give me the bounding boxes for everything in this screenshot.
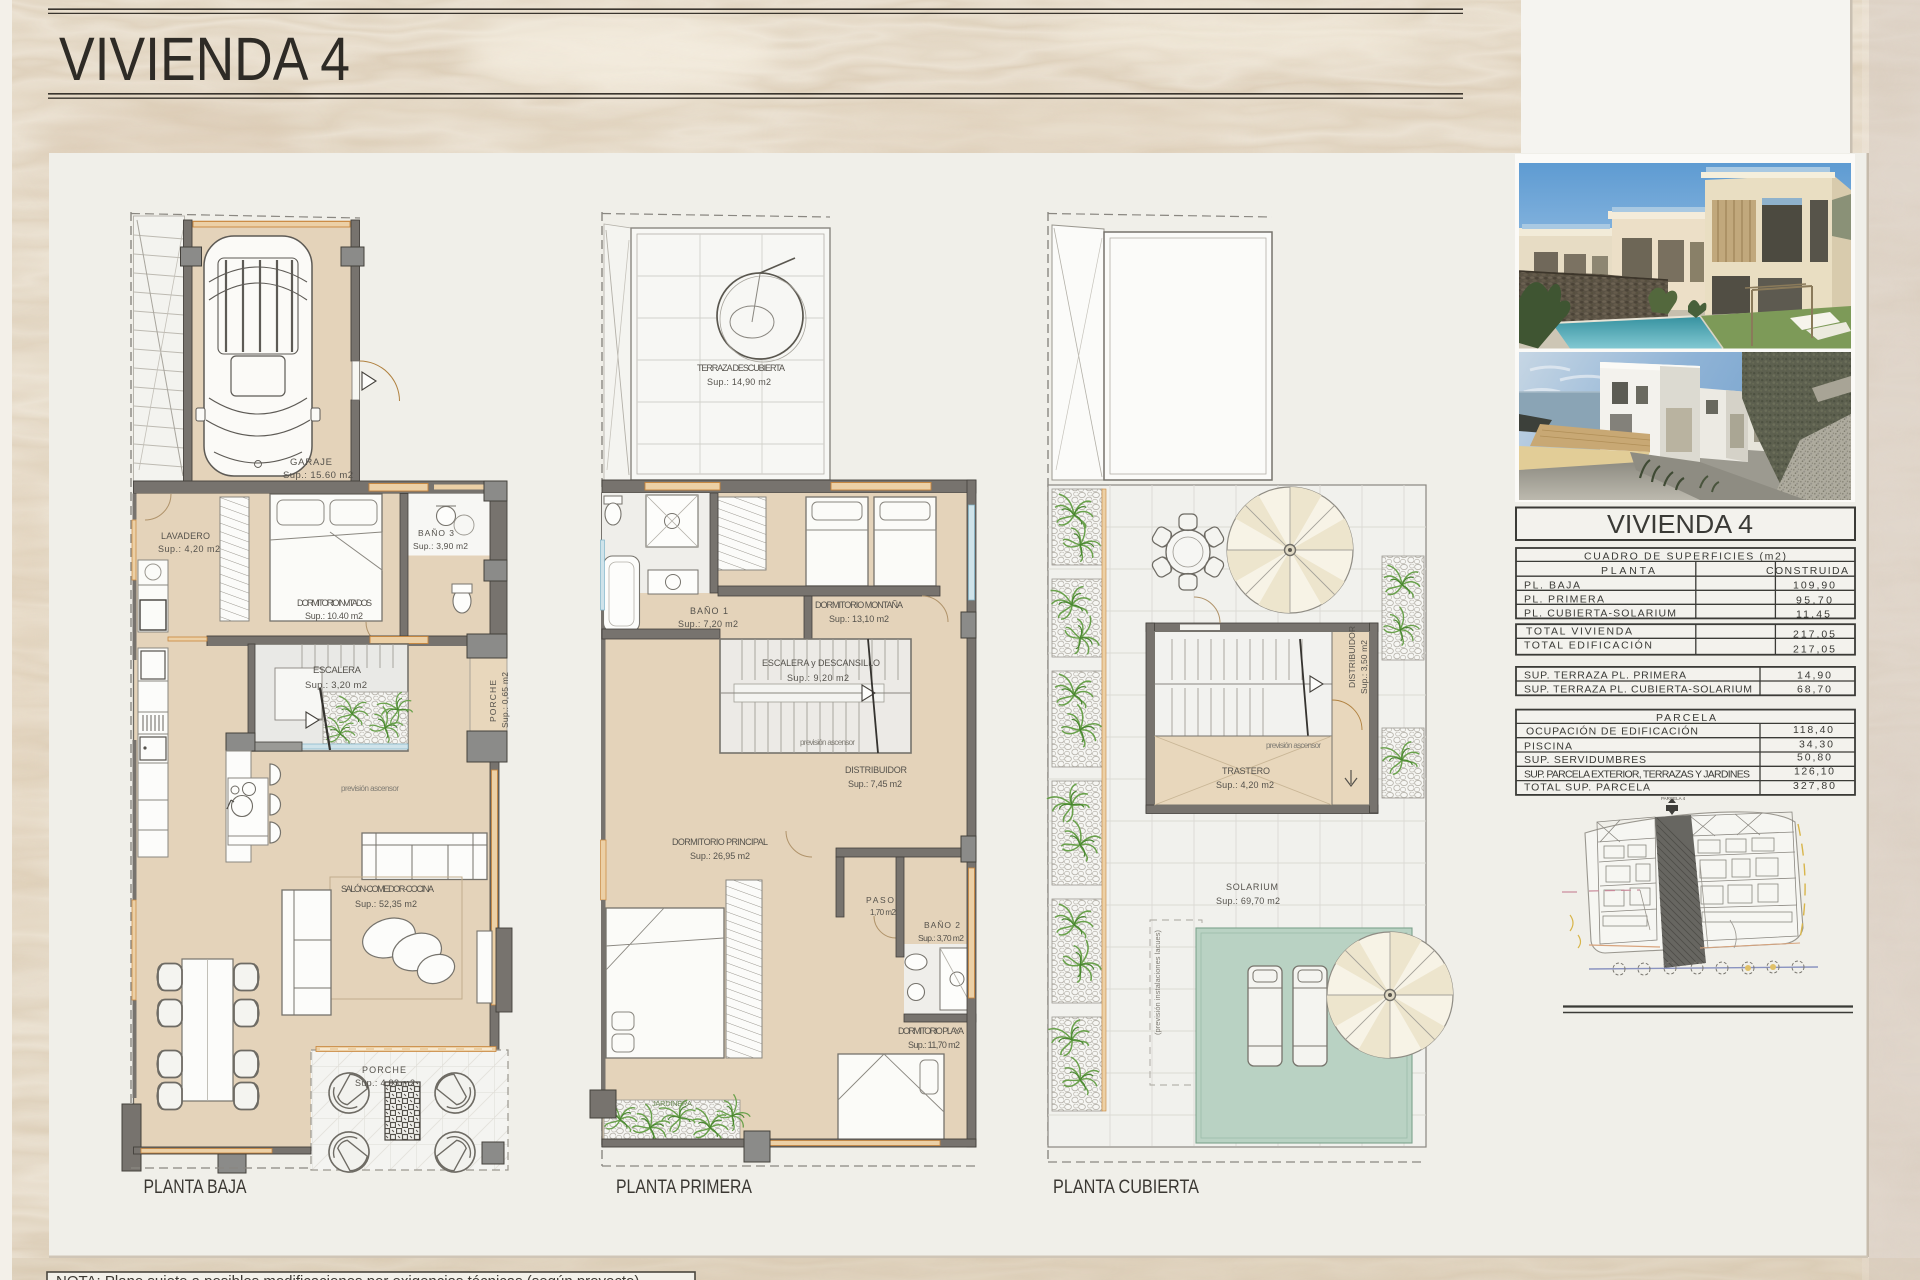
svg-text:Sup.: 0,65 m2: Sup.: 0,65 m2 [500, 672, 510, 728]
svg-text:PARCELA 4: PARCELA 4 [1661, 796, 1686, 801]
svg-text:ESCALERA: ESCALERA [313, 665, 362, 676]
svg-text:BAÑO 3: BAÑO 3 [418, 528, 454, 538]
svg-text:SOLARIUM: SOLARIUM [1226, 882, 1278, 892]
svg-text:Sup.: 69,70 m2: Sup.: 69,70 m2 [1216, 896, 1280, 906]
svg-text:SUP. PARCELA EXTERIOR, TERRAZA: SUP. PARCELA EXTERIOR, TERRAZAS Y JARDIN… [1524, 769, 1750, 781]
svg-text:DISTRIBUIDOR: DISTRIBUIDOR [1347, 626, 1357, 688]
svg-text:50,80: 50,80 [1797, 752, 1831, 764]
svg-text:Sup.: 13,10 m2: Sup.: 13,10 m2 [829, 614, 889, 624]
svg-text:PORCHE: PORCHE [488, 680, 498, 722]
svg-text:PL. CUBIERTA-SOLARIUM: PL. CUBIERTA-SOLARIUM [1524, 608, 1676, 620]
svg-text:Sup.: 26,95 m2: Sup.: 26,95 m2 [690, 851, 750, 861]
svg-text:BAÑO 2: BAÑO 2 [924, 920, 960, 930]
svg-text:TOTAL EDIFICACIÓN: TOTAL EDIFICACIÓN [1524, 639, 1652, 652]
svg-text:(previsión instalaciones lacue: (previsión instalaciones lacues) [1153, 930, 1162, 1036]
svg-text:previsión ascensor: previsión ascensor [341, 784, 399, 793]
svg-text:68,70: 68,70 [1797, 684, 1831, 696]
svg-text:DORMITORIO INVITADOS: DORMITORIO INVITADOS [297, 598, 372, 608]
svg-text:PISCINA: PISCINA [1524, 741, 1572, 753]
svg-text:Sup.: 4,20 m2: Sup.: 4,20 m2 [158, 544, 220, 554]
svg-text:previsión ascensor: previsión ascensor [800, 738, 855, 747]
svg-text:TERRAZA DESCUBIERTA: TERRAZA DESCUBIERTA [697, 363, 785, 373]
svg-text:14,90: 14,90 [1797, 670, 1831, 682]
svg-text:PARCELA: PARCELA [1656, 712, 1716, 724]
svg-text:118,40: 118,40 [1793, 724, 1833, 736]
svg-text:NOTA: Plano sujeto a posibles: NOTA: Plano sujeto a posibles modificaci… [56, 1273, 639, 1280]
svg-text:previsión ascensor: previsión ascensor [1266, 741, 1321, 750]
svg-text:DORMITORIO PLAYA: DORMITORIO PLAYA [898, 1026, 964, 1036]
svg-text:VIVIENDA 4: VIVIENDA 4 [1607, 509, 1753, 539]
svg-text:SUP. TERRAZA PL. CUBIERTA-SOLA: SUP. TERRAZA PL. CUBIERTA-SOLARIUM [1524, 684, 1752, 696]
svg-text:PLANTA CUBIERTA: PLANTA CUBIERTA [1053, 1177, 1199, 1198]
svg-text:Sup.: 52,35 m2: Sup.: 52,35 m2 [355, 899, 417, 909]
svg-text:SALÓN-COMEDOR-COCINA: SALÓN-COMEDOR-COCINA [341, 884, 434, 894]
svg-text:BAÑO 1: BAÑO 1 [690, 606, 728, 616]
svg-text:OCUPACIÓN DE EDIFICACIÓN: OCUPACIÓN DE EDIFICACIÓN [1526, 725, 1698, 738]
svg-text:CUADRO DE SUPERFICIES (m2): CUADRO DE SUPERFICIES (m2) [1584, 551, 1786, 563]
svg-text:PLANTA BAJA: PLANTA BAJA [144, 1177, 247, 1198]
svg-text:GARAJE: GARAJE [290, 457, 332, 468]
svg-text:Sup.: 4,93 m2: Sup.: 4,93 m2 [355, 1078, 415, 1088]
svg-text:Sup.: 10.40 m2: Sup.: 10.40 m2 [305, 611, 363, 621]
svg-text:DORMITORIO MONTAÑA: DORMITORIO MONTAÑA [815, 600, 903, 610]
svg-text:PORCHE: PORCHE [362, 1065, 406, 1075]
svg-text:Sup.: 3,70 m2: Sup.: 3,70 m2 [918, 933, 964, 943]
svg-text:Sup.: 3,90 m2: Sup.: 3,90 m2 [413, 541, 468, 551]
svg-text:Sup.: 14,90 m2: Sup.: 14,90 m2 [707, 377, 771, 387]
svg-text:DISTRIBUIDOR: DISTRIBUIDOR [845, 765, 908, 775]
svg-text:DORMITORIO PRINCIPAL: DORMITORIO PRINCIPAL [672, 837, 768, 847]
svg-text:34,30: 34,30 [1799, 739, 1833, 751]
svg-text:TOTAL SUP. PARCELA: TOTAL SUP. PARCELA [1524, 782, 1650, 794]
svg-text:SUP. TERRAZA PL. PRIMERA: SUP. TERRAZA PL. PRIMERA [1524, 670, 1686, 682]
svg-text:SUP. SERVIDUMBRES: SUP. SERVIDUMBRES [1524, 754, 1646, 766]
svg-text:Sup.: 15.60 m2: Sup.: 15.60 m2 [283, 470, 353, 481]
svg-text:Sup.: 3,50 m2: Sup.: 3,50 m2 [1359, 640, 1369, 694]
svg-text:ESCALERA y DESCANSILLO: ESCALERA y DESCANSILLO [762, 658, 880, 668]
svg-text:PASO: PASO [866, 895, 894, 905]
svg-text:Sup.: 11,70 m2: Sup.: 11,70 m2 [908, 1040, 960, 1050]
svg-text:JARDINERA: JARDINERA [652, 1099, 692, 1108]
svg-text:Sup.: 9,20 m2: Sup.: 9,20 m2 [787, 673, 849, 683]
svg-text:PLANTA PRIMERA: PLANTA PRIMERA [616, 1177, 752, 1198]
svg-text:1,70 m2: 1,70 m2 [870, 908, 897, 917]
svg-text:Sup.: 7,45 m2: Sup.: 7,45 m2 [848, 779, 902, 789]
svg-text:Sup.: 4,20 m2: Sup.: 4,20 m2 [1216, 780, 1274, 790]
svg-text:LAVADERO: LAVADERO [161, 531, 210, 541]
svg-text:CONSTRUIDA: CONSTRUIDA [1766, 565, 1848, 577]
svg-text:TRASTERO: TRASTERO [1222, 766, 1270, 776]
svg-text:VIVIENDA 4: VIVIENDA 4 [59, 25, 350, 93]
svg-text:Sup.: 7,20 m2: Sup.: 7,20 m2 [678, 619, 738, 629]
svg-text:Sup.: 3,20 m2: Sup.: 3,20 m2 [305, 680, 367, 691]
